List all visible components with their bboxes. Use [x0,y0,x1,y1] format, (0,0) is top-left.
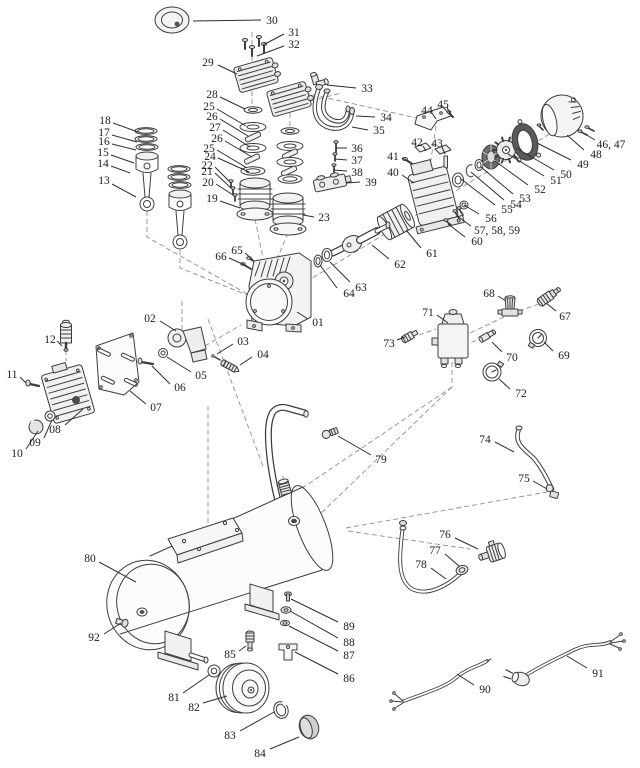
part-label-28: 28 [206,89,218,101]
leader-line-91 [567,656,587,668]
valve-plate-stack-2 [277,128,303,183]
leader-line-46-47 [585,134,595,140]
part-label-71: 71 [422,307,434,319]
part-label-09: 09 [29,437,41,449]
part-label-07: 07 [150,402,162,414]
leader-line-74 [495,442,514,452]
part-label-83: 83 [224,730,236,742]
leader-line-84 [270,737,299,749]
part-label-70: 70 [506,352,518,364]
part-label-34: 34 [380,112,392,124]
leader-line-48 [567,135,584,150]
leader-line-90 [457,674,474,685]
part-label-45: 45 [437,99,449,111]
air-tank [97,481,341,659]
leader-line-14 [111,166,130,173]
part-label-49: 49 [577,159,589,171]
leader-line-31 [263,34,284,45]
leader-line-32 [257,46,284,56]
part-label-82: 82 [188,702,200,714]
leader-line-49 [537,143,571,160]
leader-line-76 [455,538,478,549]
leader-line-78 [431,568,446,579]
part-label-91: 91 [592,668,604,680]
leader-line-13 [112,184,136,197]
leader-line-62 [372,245,389,259]
plug-79 [321,427,339,440]
leader-line-89 [291,599,338,622]
leader-line-05 [167,357,191,372]
part-label-15: 15 [97,147,109,159]
cylinder-head-1 [233,56,282,93]
part-label-29: 29 [202,57,214,69]
part-label-56: 56 [485,213,497,225]
leader-line-33 [327,85,356,88]
part-label-02: 02 [144,313,156,325]
fitting-70 [478,329,496,343]
part-label-42: 42 [411,137,423,149]
part-label-86: 86 [343,673,355,685]
part-label-90: 90 [479,684,491,696]
part-label-18: 18 [99,115,111,127]
leader-line-70 [492,342,502,352]
piston-assembly-left [135,128,158,211]
backing-plate [96,333,139,395]
leader-line-19 [220,201,240,208]
part-label-89: 89 [343,621,355,633]
part-label-64: 64 [343,288,355,300]
pressure-gauge-front [483,361,504,381]
part-label-30: 30 [266,15,278,27]
part-label-03: 03 [237,336,249,348]
leader-line-69 [544,342,553,351]
leader-line-30 [193,20,261,21]
part-label-74: 74 [479,434,491,446]
leader-line-56 [464,205,479,214]
pressure-gauge-side [528,330,546,349]
part-label-20: 20 [202,177,214,189]
part-label-36: 36 [351,143,363,155]
part-label-14: 14 [97,158,109,170]
manifold [312,170,351,192]
part-label-39: 39 [365,177,377,189]
leader-line-18 [113,123,138,132]
part-label-62: 62 [394,259,406,271]
exploded-diagram: 3031322933343528252627262524222120192336… [0,0,640,768]
leader-line-37 [335,159,347,160]
part-label-48: 48 [590,149,602,161]
part-label-61: 61 [426,248,438,260]
shaft-seals [314,249,332,268]
leader-line-17 [112,135,137,142]
part-label-92: 92 [88,632,100,644]
manifold-screws [332,141,338,172]
part-label-32: 32 [288,39,300,51]
part-label-78: 78 [415,559,427,571]
leader-line-88 [290,611,338,638]
leader-line-23 [303,215,314,217]
part-label-41: 41 [387,151,399,163]
part-label-04: 04 [257,349,269,361]
leader-line-07 [130,391,146,404]
motor-lead-cord [390,659,491,710]
part-label-84: 84 [254,748,266,760]
quick-coupler [536,285,562,307]
motor-internals [453,91,595,187]
leader-line-04 [240,357,252,365]
part-label-85: 85 [224,649,236,661]
part-label-79: 79 [375,454,387,466]
part-label-81: 81 [168,692,180,704]
valve-screws [229,180,237,201]
pressure-switch [432,310,468,368]
part-label-51: 51 [550,175,562,187]
part-label-67: 67 [559,311,571,323]
power-cord [503,633,625,688]
part-label-17: 17 [98,127,110,139]
leader-line-81 [183,675,209,693]
leader-line-35 [352,127,368,130]
part-label-23: 23 [318,212,330,224]
part-label-05: 05 [195,370,207,382]
part-label-65: 65 [231,245,243,257]
leader-line-54 [471,172,504,200]
cylinder-1 [237,178,273,220]
part-label-77: 77 [429,545,441,557]
part-label-55: 55 [501,204,513,216]
part-label-01: 01 [312,317,324,329]
leader-line-75 [533,481,547,489]
part-label-50: 50 [560,169,572,181]
part-label-10: 10 [11,448,23,460]
aftercooler-group [26,320,95,434]
part-label-75: 75 [518,473,530,485]
part-label-72: 72 [515,388,527,400]
valve-plate-stack-1 [240,107,266,175]
part-label-08: 08 [49,424,61,436]
part-label-37: 37 [351,155,363,167]
leader-line-86 [295,652,338,674]
leader-line-06 [152,366,170,384]
part-label-66: 66 [215,251,227,263]
leader-line-28 [220,97,245,109]
diagram-canvas: 3031322933343528252627262524222120192336… [0,0,640,768]
part-label-44: 44 [421,105,433,117]
part-label-87: 87 [343,650,355,662]
fitting-73 [400,329,418,344]
leader-line-79 [338,436,371,455]
leader-line-77 [445,554,459,566]
leader-line-34 [356,116,375,117]
leader-line-15 [111,155,134,163]
part-label-31: 31 [288,27,300,39]
leader-line-85 [239,646,246,651]
part-label-63: 63 [355,282,367,294]
cylinder-head-2 [266,80,315,117]
leader-line-11 [20,377,26,383]
part-label-19: 19 [206,193,218,205]
part-label-40: 40 [387,167,399,179]
part-label-68: 68 [483,288,495,300]
leader-line-52 [495,161,528,185]
leader-line-38 [334,170,347,171]
check-valve-group [400,521,507,592]
discharge-tubes [315,85,355,129]
part-label-35: 35 [373,125,385,137]
part-label-60: 60 [471,236,483,248]
part-label-76: 76 [439,529,451,541]
piston-assembly-right [168,166,191,249]
leader-line-67 [546,303,556,311]
leader-line-63 [330,262,350,282]
part-label-38: 38 [351,167,363,179]
outlet-tube [516,426,560,499]
part-label-69: 69 [558,350,570,362]
part-label-06: 06 [174,382,186,394]
part-label-11: 11 [6,369,17,381]
part-label-12: 12 [44,334,56,346]
drain-valve [246,631,254,651]
leader-line-02 [160,321,176,331]
air-filter [155,7,189,33]
crankshaft [333,222,390,256]
part-label-80: 80 [84,553,96,565]
leader-line-72 [499,379,510,389]
leader-line-25 [217,150,247,168]
leader-line-83 [240,712,274,731]
part-label-52: 52 [534,184,546,196]
leader-line-16 [112,144,136,150]
axle-hardware [279,592,297,660]
leader-line-25 [217,109,246,126]
leader-line-60 [448,224,465,237]
leader-line-66 [229,258,247,266]
crankcase [246,253,311,332]
part-label-73: 73 [383,338,395,350]
part-label-43: 43 [431,138,443,150]
part-label-13: 13 [98,175,110,187]
cylinder-2 [270,193,306,235]
part-label-33: 33 [361,83,373,95]
part-label-88: 88 [343,637,355,649]
